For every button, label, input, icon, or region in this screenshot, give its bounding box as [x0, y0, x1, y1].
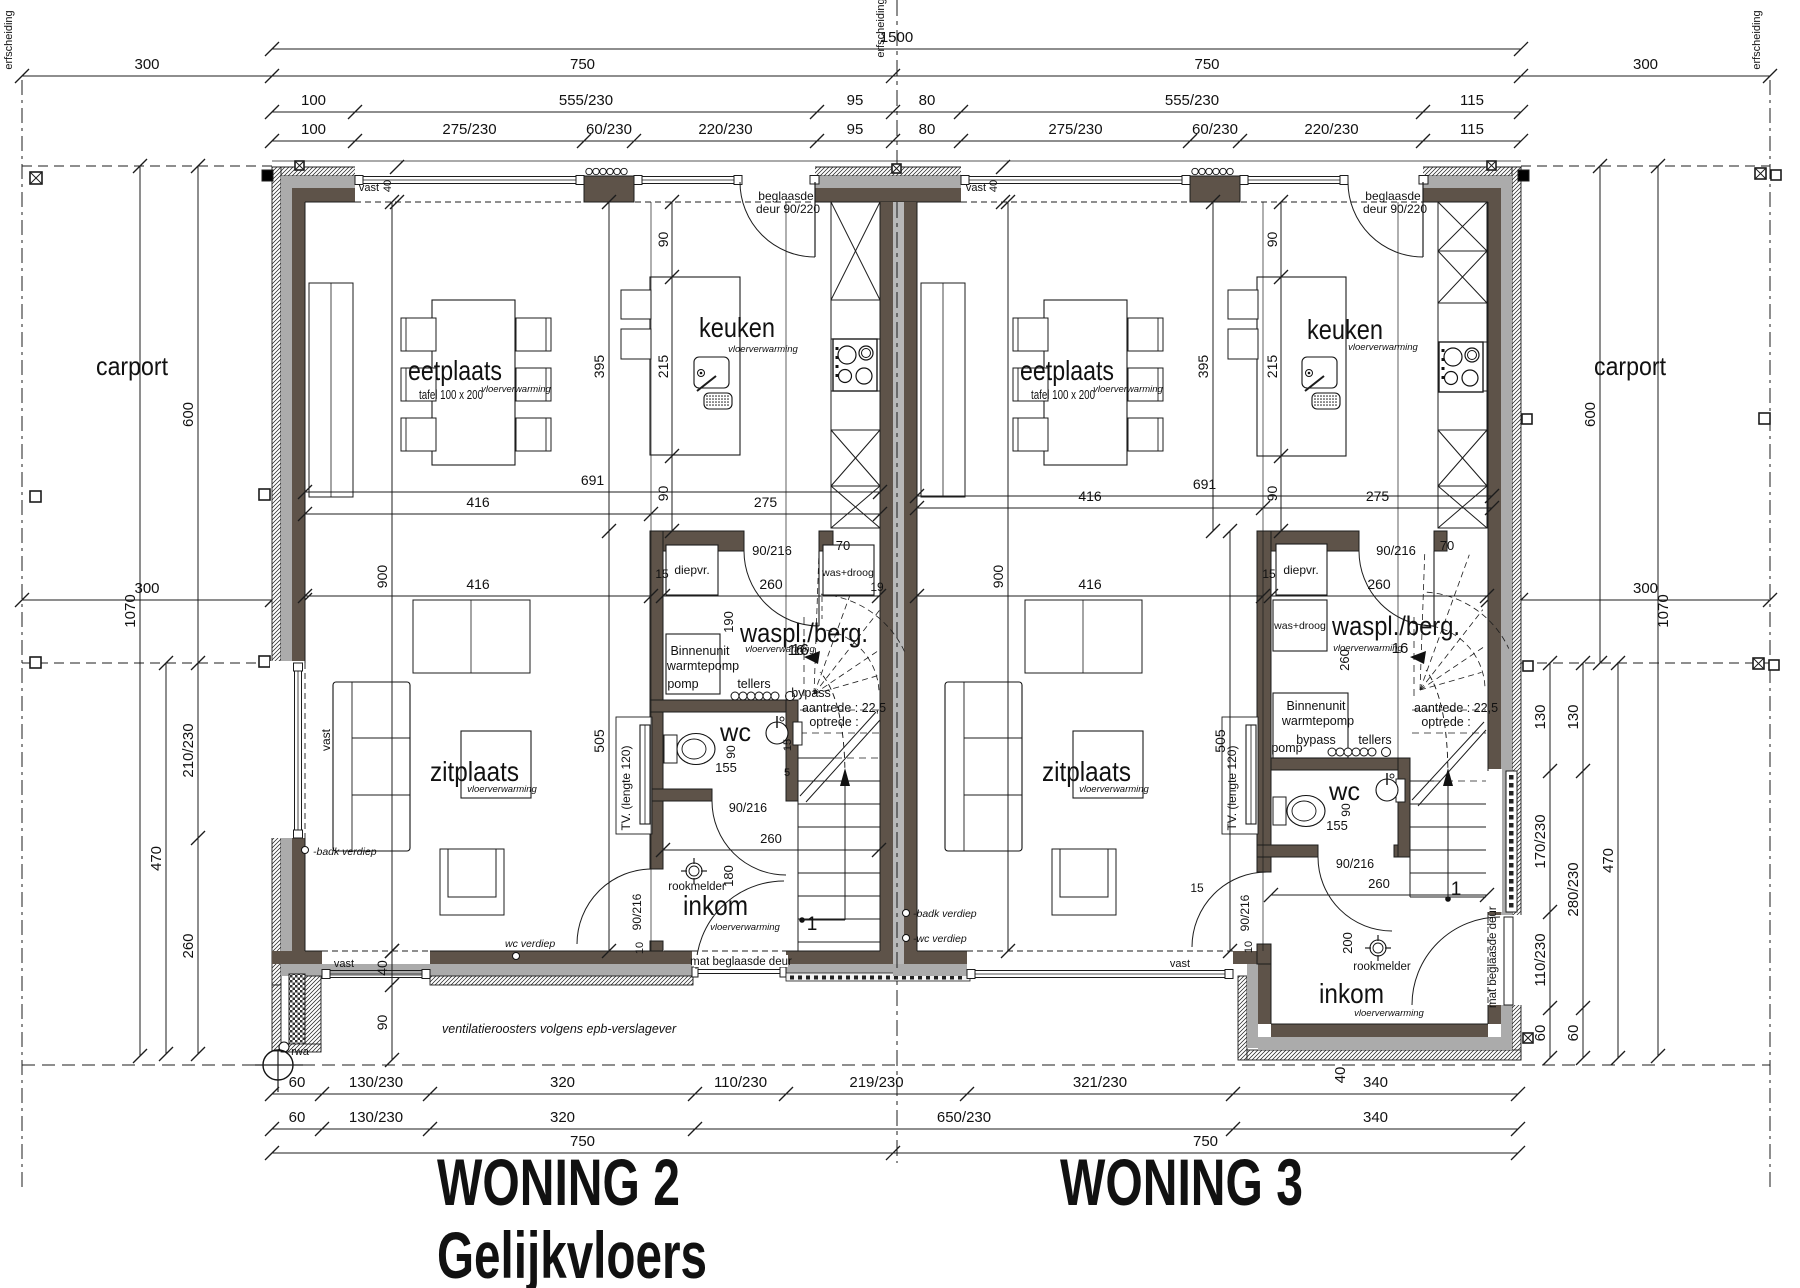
svg-text:1500: 1500	[880, 29, 913, 46]
svg-text:155: 155	[1326, 818, 1348, 833]
svg-text:416: 416	[1078, 576, 1102, 592]
svg-text:90/216: 90/216	[1336, 857, 1374, 871]
svg-text:260: 260	[759, 576, 783, 592]
svg-text:90/216: 90/216	[1238, 894, 1252, 931]
svg-text:rookmelder: rookmelder	[668, 881, 726, 893]
svg-text:220/230: 220/230	[698, 121, 752, 138]
svg-text:60: 60	[1565, 1025, 1582, 1042]
svg-text:waspl./berg.: waspl./berg.	[1331, 611, 1460, 641]
svg-text:90: 90	[374, 1015, 390, 1031]
svg-text:was+droog: was+droog	[1273, 620, 1326, 632]
svg-text:tafel 100 x 200: tafel 100 x 200	[1031, 388, 1095, 402]
svg-text:215: 215	[1264, 355, 1280, 379]
svg-text:deur 90/220: deur 90/220	[756, 202, 820, 216]
svg-text:100: 100	[301, 121, 326, 138]
svg-text:optrede :: optrede :	[1421, 715, 1470, 729]
svg-text:beglaasde: beglaasde	[1365, 189, 1421, 203]
svg-text:40: 40	[1332, 1067, 1349, 1084]
svg-text:90: 90	[1264, 486, 1280, 502]
svg-text:keuken: keuken	[1307, 314, 1383, 345]
svg-text:vloerverwarming: vloerverwarming	[467, 784, 537, 795]
svg-text:80: 80	[919, 92, 936, 109]
svg-text:vast: vast	[359, 182, 379, 194]
svg-text:110/230: 110/230	[1532, 933, 1549, 986]
svg-text:eetplaats: eetplaats	[1020, 355, 1114, 386]
svg-text:rwa: rwa	[291, 1046, 310, 1058]
svg-text:90/216: 90/216	[729, 801, 767, 815]
svg-text:40: 40	[988, 180, 1000, 192]
svg-text:60/230: 60/230	[1192, 121, 1238, 138]
svg-text:90/216: 90/216	[630, 893, 644, 930]
svg-text:bypass: bypass	[791, 686, 831, 700]
svg-text:vloerverwarming: vloerverwarming	[1354, 1008, 1424, 1019]
svg-text:600: 600	[1582, 402, 1599, 427]
svg-text:inkom: inkom	[1319, 978, 1384, 1009]
svg-text:5: 5	[784, 767, 790, 779]
svg-text:vast: vast	[319, 728, 333, 751]
svg-text:mat beglaasde deur: mat beglaasde deur	[690, 956, 792, 968]
svg-text:16: 16	[791, 642, 809, 659]
svg-text:eetplaats: eetplaats	[408, 355, 502, 386]
svg-text:tafel 100 x 200: tafel 100 x 200	[419, 388, 483, 402]
svg-text:900: 900	[990, 565, 1006, 589]
svg-text:vast: vast	[966, 182, 986, 194]
svg-text:vloerverwarming: vloerverwarming	[710, 922, 780, 933]
svg-text:170/230: 170/230	[1532, 814, 1549, 868]
svg-text:ventilatieroosters volgens epb: ventilatieroosters volgens epb-verslagev…	[442, 1022, 677, 1036]
svg-text:900: 900	[374, 565, 390, 589]
svg-text:deur 90/220: deur 90/220	[1363, 202, 1427, 216]
svg-text:750: 750	[570, 56, 595, 73]
svg-text:1: 1	[807, 914, 818, 935]
svg-text:750: 750	[1194, 56, 1219, 73]
svg-text:-wc verdiep: -wc verdiep	[913, 933, 967, 945]
svg-text:carport: carport	[1594, 351, 1667, 381]
svg-text:260: 260	[760, 831, 782, 846]
svg-text:Binnenunit: Binnenunit	[1286, 699, 1346, 713]
svg-text:70: 70	[1440, 538, 1454, 553]
svg-text:inkom: inkom	[683, 890, 748, 921]
svg-text:340: 340	[1363, 1109, 1388, 1126]
svg-text:WONING 2: WONING 2	[437, 1145, 680, 1219]
svg-text:60: 60	[289, 1109, 306, 1126]
svg-text:215: 215	[655, 355, 671, 379]
svg-text:90: 90	[655, 486, 671, 502]
svg-text:wc: wc	[1328, 776, 1360, 806]
svg-text:275: 275	[1366, 488, 1390, 504]
svg-text:275/230: 275/230	[442, 121, 496, 138]
svg-text:Gelijkvloers: Gelijkvloers	[437, 1218, 707, 1288]
svg-text:275: 275	[754, 494, 778, 510]
svg-text:40: 40	[374, 960, 390, 976]
svg-text:-badk verdiep: -badk verdiep	[313, 846, 377, 858]
svg-text:110/230: 110/230	[714, 1074, 767, 1091]
svg-text:416: 416	[466, 576, 490, 592]
svg-text:90/216: 90/216	[1376, 543, 1416, 558]
svg-text:60: 60	[289, 1074, 306, 1091]
svg-text:190: 190	[721, 611, 736, 633]
svg-text:warmtepomp: warmtepomp	[1281, 714, 1354, 728]
svg-text:carport: carport	[96, 351, 169, 381]
svg-text:219/230: 219/230	[849, 1074, 903, 1091]
svg-text:130/230: 130/230	[349, 1109, 403, 1126]
svg-text:wc: wc	[719, 717, 751, 747]
svg-text:diepvr.: diepvr.	[674, 563, 709, 577]
svg-text:470: 470	[148, 846, 165, 871]
svg-text:505: 505	[1212, 729, 1228, 753]
svg-text:vloerverwarming: vloerverwarming	[1079, 784, 1149, 795]
svg-text:WONING 3: WONING 3	[1060, 1145, 1303, 1219]
svg-text:1070: 1070	[1655, 594, 1672, 627]
svg-text:vast: vast	[334, 958, 354, 970]
svg-text:691: 691	[581, 472, 605, 488]
svg-text:TV. (lengte 120): TV. (lengte 120)	[619, 746, 633, 831]
svg-text:zitplaats: zitplaats	[430, 756, 519, 787]
svg-text:470: 470	[1600, 848, 1617, 873]
svg-text:-badk verdiep: -badk verdiep	[913, 908, 977, 920]
svg-text:340: 340	[1363, 1074, 1388, 1091]
svg-text:diepvr.: diepvr.	[1283, 563, 1318, 577]
svg-text:95: 95	[847, 92, 864, 109]
svg-text:95: 95	[847, 121, 864, 138]
svg-text:70: 70	[836, 538, 850, 553]
svg-text:15: 15	[782, 739, 794, 751]
svg-text:260: 260	[180, 933, 197, 958]
svg-text:275/230: 275/230	[1048, 121, 1102, 138]
svg-text:zitplaats: zitplaats	[1042, 756, 1131, 787]
svg-text:15: 15	[1190, 881, 1204, 895]
svg-text:TV. (lengte 120): TV. (lengte 120)	[1225, 746, 1239, 831]
svg-text:210/230: 210/230	[180, 723, 197, 777]
svg-text:300: 300	[134, 56, 159, 73]
svg-text:260: 260	[1368, 876, 1390, 891]
svg-text:rookmelder: rookmelder	[1353, 961, 1411, 973]
svg-text:130: 130	[1565, 704, 1582, 729]
svg-text:395: 395	[591, 355, 607, 379]
svg-text:vloerverwarming: vloerverwarming	[728, 344, 798, 355]
svg-text:15: 15	[655, 567, 669, 581]
svg-text:tellers: tellers	[737, 677, 770, 691]
svg-text:erfscheiding: erfscheiding	[3, 10, 15, 69]
svg-text:optrede :: optrede :	[809, 715, 858, 729]
svg-text:40: 40	[382, 180, 394, 192]
svg-text:555/230: 555/230	[559, 92, 613, 109]
svg-text:keuken: keuken	[699, 312, 775, 343]
svg-text:pomp: pomp	[1271, 741, 1302, 755]
svg-text:650/230: 650/230	[937, 1109, 991, 1126]
svg-text:100: 100	[301, 92, 326, 109]
svg-text:280/230: 280/230	[1565, 862, 1582, 916]
svg-text:aantrede : 22,5: aantrede : 22,5	[1414, 701, 1498, 715]
svg-text:vloerverwarming: vloerverwarming	[1348, 342, 1418, 353]
svg-text:416: 416	[466, 494, 490, 510]
svg-text:90: 90	[1264, 232, 1280, 248]
svg-text:300: 300	[1633, 56, 1658, 73]
svg-text:555/230: 555/230	[1165, 92, 1219, 109]
svg-text:115: 115	[1460, 121, 1484, 138]
svg-text:was+droog: was+droog	[821, 567, 874, 579]
svg-text:1: 1	[1451, 879, 1462, 900]
svg-text:80: 80	[919, 121, 936, 138]
svg-text:warmtepomp: warmtepomp	[666, 659, 739, 673]
svg-text:90: 90	[655, 232, 671, 248]
svg-text:220/230: 220/230	[1304, 121, 1358, 138]
svg-text:416: 416	[1078, 488, 1102, 504]
svg-text:mat beglaasde deur: mat beglaasde deur	[1487, 906, 1499, 1008]
svg-text:10: 10	[634, 942, 646, 954]
svg-text:vast: vast	[1170, 958, 1190, 970]
svg-text:395: 395	[1195, 355, 1211, 379]
svg-text:erfscheiding: erfscheiding	[1751, 10, 1763, 69]
svg-text:130/230: 130/230	[349, 1074, 403, 1091]
svg-text:320: 320	[550, 1074, 575, 1091]
svg-text:15: 15	[1262, 567, 1276, 581]
svg-text:aantrede : 22,5: aantrede : 22,5	[802, 701, 886, 715]
svg-text:10: 10	[1243, 941, 1255, 953]
svg-text:180: 180	[721, 865, 736, 887]
svg-text:320: 320	[550, 1109, 575, 1126]
svg-text:321/230: 321/230	[1073, 1074, 1127, 1091]
svg-text:260: 260	[1367, 576, 1391, 592]
svg-text:wc verdiep: wc verdiep	[505, 938, 555, 950]
svg-text:beglaasde: beglaasde	[758, 189, 814, 203]
svg-text:tellers: tellers	[1358, 733, 1391, 747]
svg-text:600: 600	[180, 402, 197, 427]
svg-text:60: 60	[1532, 1025, 1549, 1042]
svg-text:505: 505	[591, 729, 607, 753]
svg-text:155: 155	[715, 760, 737, 775]
svg-text:260: 260	[1337, 649, 1352, 671]
svg-text:19: 19	[870, 580, 884, 594]
svg-text:vloerverwarming: vloerverwarming	[1093, 384, 1163, 395]
svg-text:1070: 1070	[122, 594, 139, 627]
svg-text:vloerverwarming: vloerverwarming	[481, 384, 551, 395]
svg-text:90: 90	[1339, 803, 1353, 817]
svg-text:300: 300	[134, 580, 159, 597]
svg-text:pomp: pomp	[667, 677, 698, 691]
svg-text:200: 200	[1340, 932, 1355, 954]
svg-text:300: 300	[1633, 580, 1658, 597]
svg-text:60/230: 60/230	[586, 121, 632, 138]
svg-text:Binnenunit: Binnenunit	[670, 644, 730, 658]
svg-text:115: 115	[1460, 92, 1484, 109]
svg-text:90: 90	[724, 745, 738, 759]
svg-text:130: 130	[1532, 704, 1549, 729]
